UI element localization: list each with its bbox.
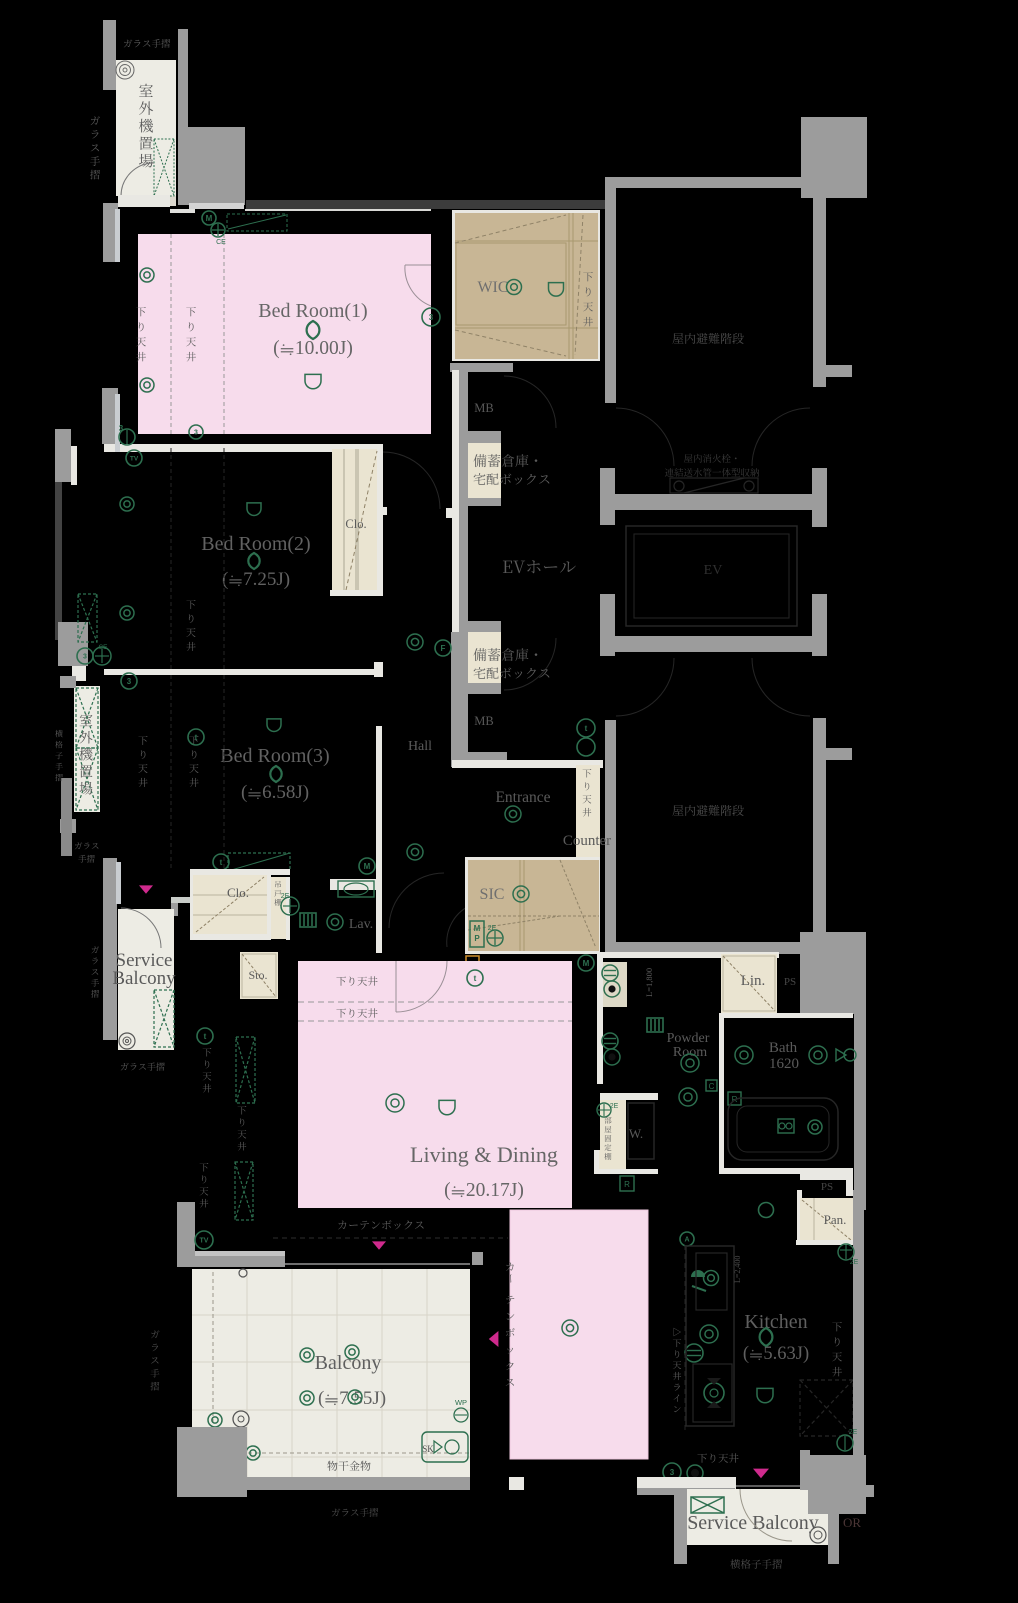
svg-text:6.58J): 6.58J): [262, 782, 309, 803]
svg-text:Sto.: Sto.: [248, 968, 267, 982]
svg-text:TV: TV: [200, 1238, 209, 1245]
svg-text:Bed Room(1): Bed Room(1): [258, 300, 367, 322]
svg-text:Lav.: Lav.: [349, 917, 373, 932]
svg-text:t: t: [195, 733, 198, 742]
svg-text:Room: Room: [673, 1045, 707, 1060]
svg-text:P: P: [474, 934, 480, 943]
svg-text:OR: OR: [843, 1515, 861, 1530]
svg-text:Bed Room(2): Bed Room(2): [201, 533, 310, 555]
svg-text:WP: WP: [455, 1398, 467, 1407]
svg-text:Lin.: Lin.: [741, 973, 766, 989]
svg-text:SIC: SIC: [480, 886, 505, 903]
svg-text:Clo.: Clo.: [227, 885, 249, 900]
svg-text:M: M: [583, 959, 590, 968]
svg-text:Pan.: Pan.: [824, 1212, 847, 1227]
svg-text:3: 3: [83, 654, 87, 661]
svg-text:1620: 1620: [769, 1056, 799, 1072]
svg-text:M: M: [474, 924, 481, 933]
svg-text:2E: 2E: [849, 1429, 858, 1436]
svg-text:Entrance: Entrance: [495, 789, 550, 806]
svg-text:10.00J): 10.00J): [295, 338, 353, 359]
svg-text:R: R: [624, 1180, 630, 1189]
svg-text:A: A: [684, 1237, 689, 1244]
svg-text:PS: PS: [784, 976, 796, 988]
svg-text:L=1,800: L=1,800: [644, 968, 654, 997]
svg-text:Hall: Hall: [408, 739, 432, 754]
svg-text:(: (: [743, 1344, 749, 1364]
svg-text:Counter: Counter: [563, 833, 611, 849]
svg-text:(: (: [273, 338, 280, 359]
svg-text:M: M: [206, 214, 213, 223]
svg-text:(: (: [222, 569, 228, 590]
svg-text:t: t: [204, 1032, 207, 1041]
svg-text:CE: CE: [98, 644, 108, 651]
svg-text:CE: CE: [216, 239, 226, 246]
svg-text:Clo.: Clo.: [345, 517, 366, 531]
svg-text:3: 3: [119, 424, 124, 433]
svg-text:Balcony: Balcony: [112, 968, 176, 989]
svg-text:Kitchen: Kitchen: [744, 1311, 807, 1333]
svg-text:C: C: [709, 1082, 715, 1091]
svg-text:Living & Dining: Living & Dining: [410, 1142, 558, 1167]
svg-text:WIC: WIC: [477, 279, 508, 296]
svg-text:(: (: [318, 1388, 324, 1409]
svg-text:Balcony: Balcony: [315, 1352, 382, 1374]
svg-text:(: (: [241, 782, 247, 803]
svg-text:F: F: [441, 644, 446, 653]
svg-text:2E: 2E: [488, 925, 497, 932]
svg-text:Bath: Bath: [769, 1040, 798, 1056]
svg-text:t: t: [474, 974, 477, 983]
svg-text:L=2,400: L=2,400: [733, 1256, 742, 1283]
svg-text:3: 3: [670, 1468, 675, 1477]
svg-text:Bed Room(3): Bed Room(3): [220, 745, 329, 767]
svg-text:t: t: [585, 724, 588, 733]
svg-text:EV: EV: [704, 563, 723, 578]
svg-text:t: t: [220, 858, 223, 867]
svg-text:3: 3: [194, 430, 198, 437]
svg-text:PS: PS: [821, 1181, 833, 1193]
svg-text:5.63J): 5.63J): [763, 1344, 809, 1364]
svg-text:2E: 2E: [610, 1103, 619, 1110]
svg-text:2E: 2E: [850, 1259, 859, 1266]
svg-text:SK: SK: [422, 1444, 434, 1454]
svg-text:Powder: Powder: [667, 1031, 710, 1046]
svg-text:7.25J): 7.25J): [243, 569, 290, 590]
svg-text:TV: TV: [130, 455, 139, 462]
svg-text:3: 3: [429, 313, 434, 322]
svg-text:MB: MB: [474, 714, 493, 728]
svg-text:(: (: [444, 1180, 451, 1201]
svg-text:MB: MB: [474, 401, 493, 415]
svg-text:M: M: [364, 862, 371, 871]
svg-text:3: 3: [127, 677, 132, 686]
svg-text:2E: 2E: [281, 893, 290, 900]
svg-text:20.17J): 20.17J): [466, 1180, 524, 1201]
svg-text:W.: W.: [629, 1126, 643, 1141]
